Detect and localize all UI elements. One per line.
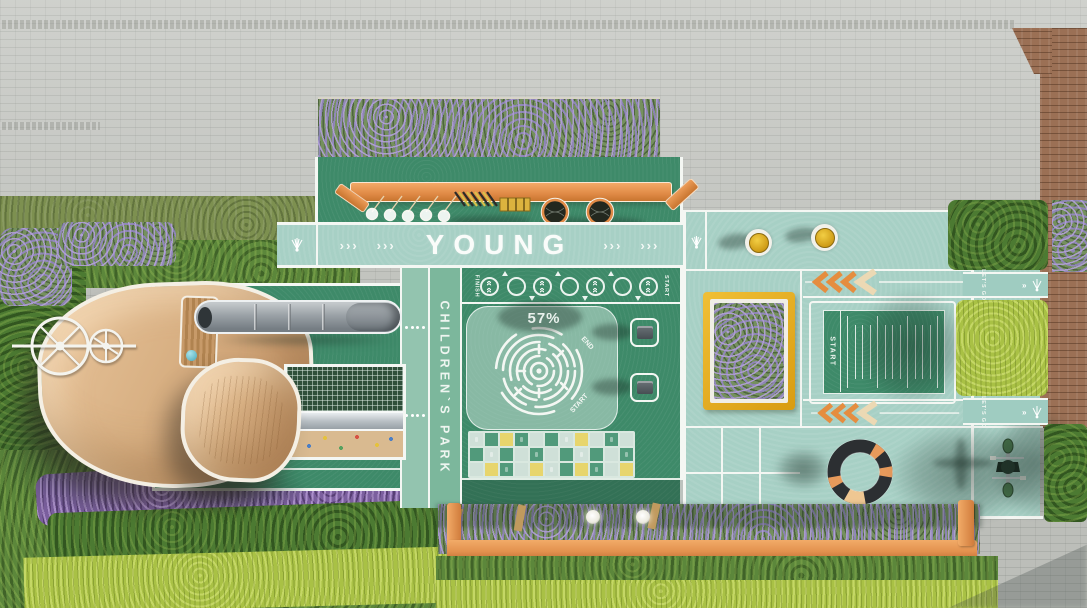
lets-go-label: LET'S GO: [980, 396, 986, 428]
checker-cell: [620, 433, 633, 446]
childrens-park-stripe: CHILDREN`S PARK: [428, 268, 462, 508]
checker-cell: [545, 463, 558, 476]
svg-text:»: »: [1022, 281, 1027, 290]
shuttlecock-arrow-icon: »: [1022, 404, 1044, 420]
checker-cell: [545, 448, 558, 461]
hopscotch-circle: [613, 277, 632, 296]
checker-cell: [485, 433, 498, 446]
checker-cell: [485, 448, 498, 461]
checker-cell: [500, 433, 513, 446]
climbing-net: [287, 367, 403, 411]
maze-percent-label: 57%: [512, 310, 576, 327]
checker-cell: [590, 463, 603, 476]
lane-arrows: ›››: [603, 238, 622, 253]
hopscotch-start-label: START: [663, 275, 669, 297]
lets-go-lane: LET'S GO »: [963, 272, 1048, 298]
ring-bench: [819, 432, 899, 512]
hopscotch-circle: »»: [533, 277, 552, 296]
checker-cell: [530, 448, 543, 461]
checker-cell: [620, 463, 633, 476]
checker-cell: [560, 433, 573, 446]
shuttlecock-arrow-icon: »: [1022, 277, 1044, 293]
canopy-small: [179, 356, 303, 484]
checkerboard-game: [468, 431, 635, 478]
bench-end: [958, 500, 974, 546]
hopscotch-arrow-mark: [608, 271, 614, 276]
lets-go-lane: LET'S GO »: [963, 398, 1048, 425]
hopscotch-arrow-mark: [529, 296, 535, 301]
hopscotch-arrow-mark: [635, 296, 641, 301]
checker-cell: [605, 463, 618, 476]
hedgerow-south: [436, 580, 998, 608]
lane-dots: [405, 316, 427, 334]
svg-text:»: »: [1022, 408, 1027, 417]
court-shade: [462, 480, 683, 507]
hopscotch-track: FINISH START »»»»»»»»: [462, 270, 680, 304]
checker-cell: [605, 448, 618, 461]
hopscotch-arrow-mark: [582, 296, 588, 301]
checker-cell: [515, 433, 528, 446]
checker-cell: [560, 463, 573, 476]
checker-cell: [545, 433, 558, 446]
young-band-icon-cell: [277, 225, 318, 265]
hedge-block: [1044, 424, 1087, 522]
lets-go-label: LET'S GO: [980, 269, 986, 301]
checker-cell: [500, 448, 513, 461]
tube-end-cap: [346, 303, 400, 331]
paving-accent-strip: [0, 20, 1015, 29]
tube-shadow: [212, 334, 398, 346]
checker-cell: [470, 448, 483, 461]
planter-box: [703, 292, 795, 410]
metal-slide: [287, 411, 403, 431]
stool: [811, 224, 838, 251]
hopscotch-circle: [560, 277, 579, 296]
checker-cell: [575, 433, 588, 446]
flower-bed-east: [1052, 200, 1087, 272]
checker-cell: [605, 433, 618, 446]
long-jump-start-label: START: [829, 336, 836, 366]
hopscotch-arrow-mark: [502, 271, 508, 276]
lane-dots: [405, 404, 427, 422]
hopscotch-arrow-mark: [555, 271, 561, 276]
climb-unit: [284, 364, 406, 460]
hopscotch-circle: »»: [586, 277, 605, 296]
stool: [745, 229, 772, 256]
checker-cell: [530, 463, 543, 476]
checker-cell: [515, 463, 528, 476]
seat-cube: [630, 318, 659, 347]
checker-cell: [530, 433, 543, 446]
play-ball: [186, 350, 197, 361]
lane-arrows: ›››: [640, 238, 659, 253]
ball-lamp: [586, 510, 600, 524]
chevron-marking-icon: [803, 269, 971, 296]
climbing-wall: [287, 431, 403, 457]
tube-slide: [194, 300, 402, 334]
lavender-patch: [58, 222, 176, 266]
young-label: YOUNG: [426, 229, 574, 261]
checker-cell: [590, 433, 603, 446]
childrens-park-label: CHILDREN`S PARK: [438, 300, 452, 475]
checker-cell: [575, 448, 588, 461]
lavender-strip-north: [318, 97, 660, 159]
chevron-marking-icon: [803, 401, 971, 426]
young-band: ››› ››› YOUNG ››› ›››: [277, 222, 683, 268]
maze-start-label: START: [569, 392, 590, 414]
checker-cell: [500, 463, 513, 476]
shuttlecock-icon: [690, 235, 703, 250]
paving-accent-strip: [0, 122, 100, 130]
checker-cell: [590, 448, 603, 461]
shuttlecock-icon: [290, 237, 304, 253]
checker-cell: [575, 463, 588, 476]
checker-cell: [470, 463, 483, 476]
checker-cell: [560, 448, 573, 461]
canopy-floor: [197, 375, 284, 466]
checker-cell: [515, 448, 528, 461]
hedge-block: [956, 300, 1048, 396]
tube-opening: [198, 307, 212, 328]
checker-cell: [470, 433, 483, 446]
monkey-rungs: [455, 192, 497, 206]
park-aerial-scene: ››› ››› YOUNG ››› ››› CHILDREN`S PARK FI…: [0, 0, 1087, 608]
chevron-lane: [803, 399, 971, 426]
windmill-spinner: [8, 308, 140, 382]
seat-cube: [630, 373, 659, 402]
lane-arrows: ›››: [340, 238, 359, 253]
planter-lavender: [714, 303, 784, 399]
lane-arrows: ›››: [377, 238, 396, 253]
grass-row-southwest: [23, 546, 464, 608]
ball-lamp: [636, 510, 650, 524]
checker-cell: [620, 448, 633, 461]
maze-end-label: END: [580, 336, 595, 352]
ruler-tick: [847, 316, 848, 388]
ladder-segment: [500, 198, 530, 211]
tree-shadow: [853, 290, 971, 404]
checker-cell: [485, 463, 498, 476]
hedge-block: [948, 200, 1048, 270]
hopscotch-circle: [507, 277, 526, 296]
hopscotch-finish-label: FINISH: [473, 275, 479, 298]
hopscotch-circle: »»: [480, 277, 499, 296]
hopscotch-circle: »»: [639, 277, 658, 296]
